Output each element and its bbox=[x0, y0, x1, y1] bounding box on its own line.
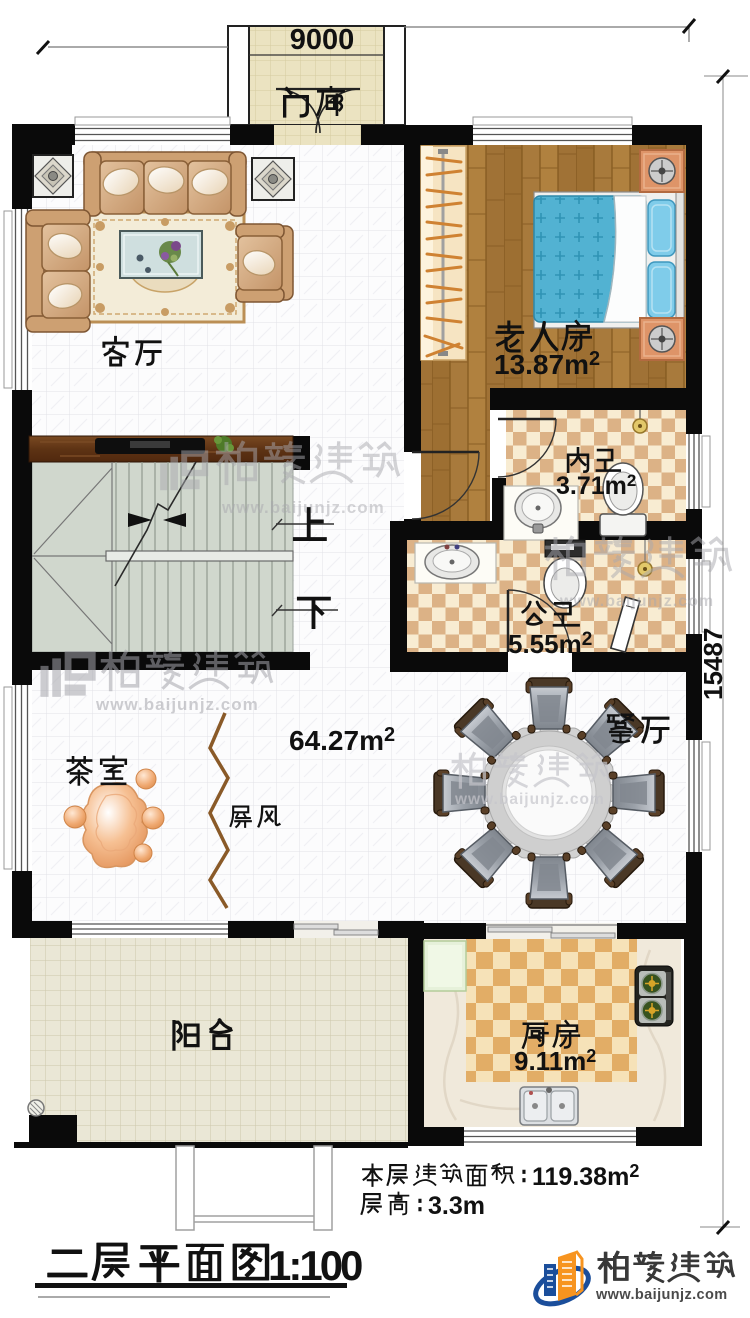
svg-text:64.27m2: 64.27m2 bbox=[289, 724, 395, 756]
svg-text:3.3m: 3.3m bbox=[428, 1192, 485, 1220]
svg-text:www.baijunjz.com: www.baijunjz.com bbox=[221, 498, 385, 517]
svg-text:3.71m2: 3.71m2 bbox=[556, 471, 636, 500]
svg-text:9.11m2: 9.11m2 bbox=[514, 1046, 596, 1076]
svg-text:9000: 9000 bbox=[290, 24, 355, 56]
svg-text:www.baijunjz.com: www.baijunjz.com bbox=[95, 695, 259, 714]
svg-text:1:100: 1:100 bbox=[268, 1242, 362, 1289]
svg-text:www.baijunjz.com: www.baijunjz.com bbox=[559, 593, 714, 610]
svg-text:5.55m2: 5.55m2 bbox=[508, 629, 592, 659]
svg-text:www.baijunjz.com: www.baijunjz.com bbox=[454, 791, 605, 808]
svg-text:15487: 15487 bbox=[698, 628, 728, 700]
svg-text:www.baijunjz.com: www.baijunjz.com bbox=[595, 1287, 728, 1303]
svg-text:119.38m2: 119.38m2 bbox=[532, 1161, 639, 1191]
svg-text:13.87m2: 13.87m2 bbox=[494, 348, 600, 380]
